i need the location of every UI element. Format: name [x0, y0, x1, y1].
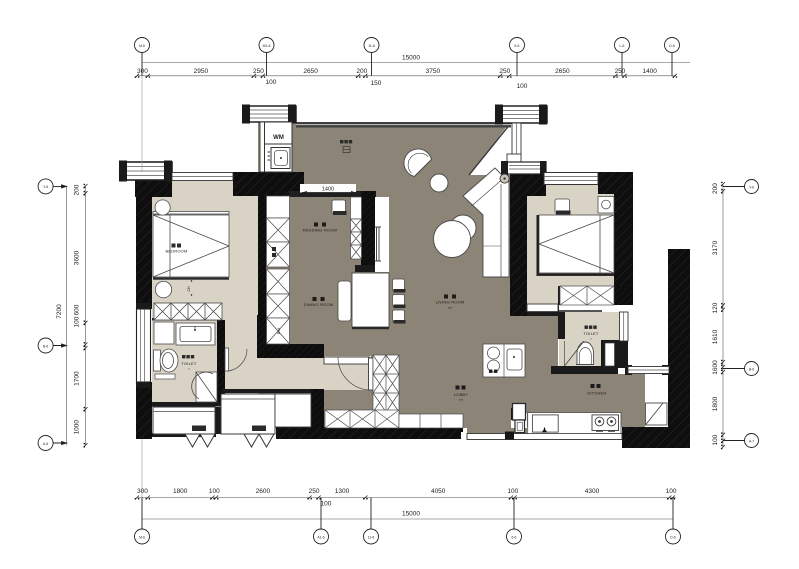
svg-text:M1-6: M1-6 — [263, 44, 271, 48]
svg-text:A-7: A-7 — [749, 439, 754, 443]
svg-text:1800: 1800 — [712, 396, 719, 411]
svg-text:600: 600 — [74, 304, 81, 315]
svg-text:3750: 3750 — [426, 68, 441, 75]
svg-text:Y-6: Y-6 — [749, 185, 754, 189]
svg-text:250: 250 — [499, 68, 510, 75]
svg-text:M-6: M-6 — [139, 44, 145, 48]
svg-text:250: 250 — [309, 488, 320, 495]
svg-text:3170: 3170 — [712, 240, 719, 255]
svg-text:LIVING ROOM: LIVING ROOM — [436, 300, 465, 305]
svg-text:TOILET: TOILET — [181, 361, 196, 366]
svg-text:300: 300 — [137, 68, 148, 75]
svg-text:L-6: L-6 — [620, 44, 625, 48]
svg-text:200: 200 — [74, 184, 81, 195]
svg-text:3600: 3600 — [74, 250, 81, 265]
svg-text:6-6: 6-6 — [512, 535, 517, 539]
svg-text:100: 100 — [712, 434, 719, 445]
svg-text:BEDROOM: BEDROOM — [165, 249, 187, 254]
svg-text:200: 200 — [712, 183, 719, 194]
svg-text:100: 100 — [517, 83, 528, 90]
svg-text:1400: 1400 — [322, 187, 334, 193]
svg-text:1400: 1400 — [642, 68, 657, 75]
svg-text:120: 120 — [712, 302, 719, 313]
svg-text:2650: 2650 — [303, 68, 318, 75]
svg-text:150: 150 — [371, 80, 382, 87]
svg-text:100: 100 — [74, 316, 81, 327]
svg-text:Y-6: Y-6 — [43, 185, 48, 189]
svg-text:11-6: 11-6 — [368, 44, 375, 48]
svg-text:A1-6: A1-6 — [317, 535, 324, 539]
svg-text:100: 100 — [507, 488, 518, 495]
svg-text:D-6: D-6 — [669, 44, 675, 48]
svg-text:11-6: 11-6 — [368, 535, 375, 539]
svg-text:D-6: D-6 — [670, 535, 676, 539]
svg-text:250: 250 — [253, 68, 264, 75]
svg-text:WM: WM — [273, 135, 284, 141]
svg-text:1000: 1000 — [74, 420, 81, 435]
svg-text:A-6: A-6 — [43, 442, 48, 446]
svg-text:4050: 4050 — [431, 488, 446, 495]
svg-text:100: 100 — [209, 488, 220, 495]
svg-text:TOILET: TOILET — [583, 331, 598, 336]
svg-text:2650: 2650 — [555, 68, 570, 75]
svg-text:250: 250 — [615, 68, 626, 75]
svg-text:1700: 1700 — [74, 371, 81, 386]
svg-text:KITCHEN: KITCHEN — [588, 391, 607, 396]
svg-text:100: 100 — [321, 501, 332, 508]
svg-text:1610: 1610 — [712, 329, 719, 344]
svg-text:DINING ROOM: DINING ROOM — [304, 302, 334, 307]
svg-text:100: 100 — [266, 79, 277, 86]
svg-text:300: 300 — [137, 488, 148, 495]
svg-text:CH: CH — [187, 286, 191, 292]
svg-text:READING ROOM: READING ROOM — [303, 228, 337, 233]
svg-text:2600: 2600 — [256, 488, 271, 495]
svg-text:200: 200 — [356, 68, 367, 75]
svg-text:4300: 4300 — [585, 488, 600, 495]
svg-text:xxx: xxx — [459, 398, 464, 402]
svg-text:1800: 1800 — [173, 488, 188, 495]
svg-text:15000: 15000 — [402, 55, 420, 62]
svg-text:xxx: xxx — [448, 306, 453, 310]
svg-text:2950: 2950 — [194, 68, 209, 75]
svg-text:LOBBY: LOBBY — [454, 392, 468, 397]
svg-text:M-6: M-6 — [139, 535, 145, 539]
svg-text:6-6: 6-6 — [515, 44, 520, 48]
svg-text:7200: 7200 — [56, 304, 63, 319]
svg-text:15000: 15000 — [402, 511, 420, 518]
svg-text:B-6: B-6 — [43, 344, 48, 348]
svg-text:B-6: B-6 — [749, 367, 754, 371]
svg-text:1600: 1600 — [712, 360, 719, 375]
svg-text:100: 100 — [666, 488, 677, 495]
svg-text:1300: 1300 — [335, 488, 350, 495]
svg-text:Ref: Ref — [276, 327, 281, 335]
